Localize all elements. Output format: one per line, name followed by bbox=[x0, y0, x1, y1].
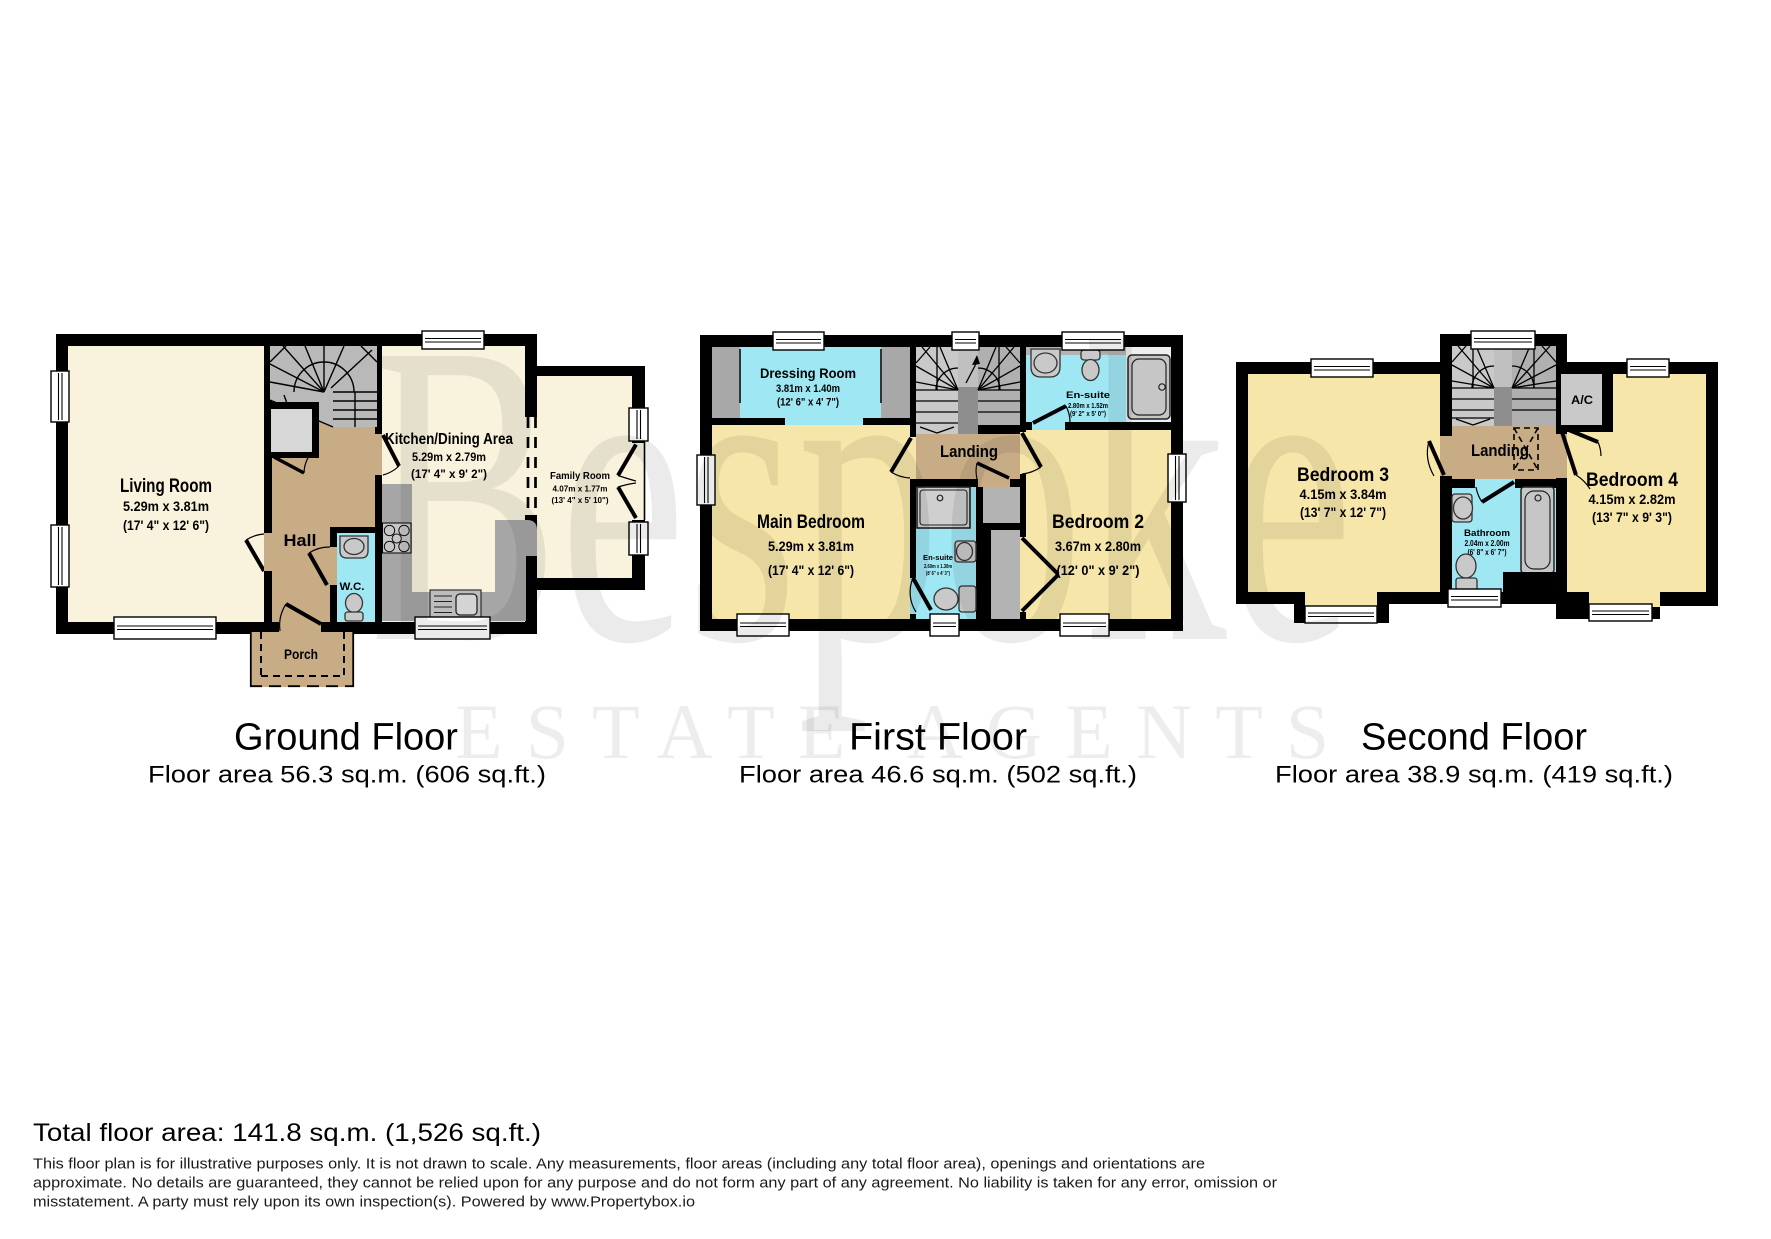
svg-text:This floor plan is for illustr: This floor plan is for illustrative purp… bbox=[33, 1157, 1205, 1173]
svg-text:(13' 7" x 9' 3"): (13' 7" x 9' 3") bbox=[1592, 509, 1672, 525]
svg-text:approximate. No details are gu: approximate. No details are guaranteed, … bbox=[33, 1176, 1277, 1192]
svg-text:Floor area 56.3 sq.m. (606 sq.: Floor area 56.3 sq.m. (606 sq.ft.) bbox=[148, 762, 546, 789]
svg-text:(17' 4" x 12' 6"): (17' 4" x 12' 6") bbox=[123, 517, 209, 533]
svg-text:First Floor: First Floor bbox=[849, 717, 1027, 759]
svg-text:Bedroom 4: Bedroom 4 bbox=[1586, 470, 1678, 491]
svg-text:Total floor area: 141.8 sq.m.: Total floor area: 141.8 sq.m. (1,526 sq.… bbox=[33, 1119, 541, 1147]
svg-text:Floor area 46.6 sq.m. (502 sq.: Floor area 46.6 sq.m. (502 sq.ft.) bbox=[739, 762, 1137, 789]
svg-text:A/C: A/C bbox=[1571, 395, 1593, 407]
svg-text:5.29m x 3.81m: 5.29m x 3.81m bbox=[123, 498, 209, 514]
svg-text:W.C.: W.C. bbox=[340, 581, 365, 593]
svg-text:Porch: Porch bbox=[284, 647, 318, 662]
svg-text:Living Room: Living Room bbox=[120, 476, 212, 497]
svg-text:Floor area 38.9 sq.m. (419 sq.: Floor area 38.9 sq.m. (419 sq.ft.) bbox=[1275, 762, 1673, 789]
svg-text:Second Floor: Second Floor bbox=[1361, 717, 1587, 759]
svg-text:Hall: Hall bbox=[284, 531, 317, 550]
svg-text:Bathroom: Bathroom bbox=[1464, 528, 1510, 539]
svg-text:(6' 8" x 6' 7"): (6' 8" x 6' 7") bbox=[1468, 548, 1507, 557]
svg-text:Landing: Landing bbox=[1471, 441, 1529, 460]
svg-text:4.15m x 2.82m: 4.15m x 2.82m bbox=[1589, 491, 1676, 507]
svg-text:Ground Floor: Ground Floor bbox=[234, 717, 458, 759]
svg-text:Bespoke: Bespoke bbox=[369, 255, 1354, 734]
svg-text:misstatement. A party must rel: misstatement. A party must rely upon its… bbox=[33, 1195, 695, 1211]
svg-text:2.04m x 2.00m: 2.04m x 2.00m bbox=[1465, 539, 1510, 548]
